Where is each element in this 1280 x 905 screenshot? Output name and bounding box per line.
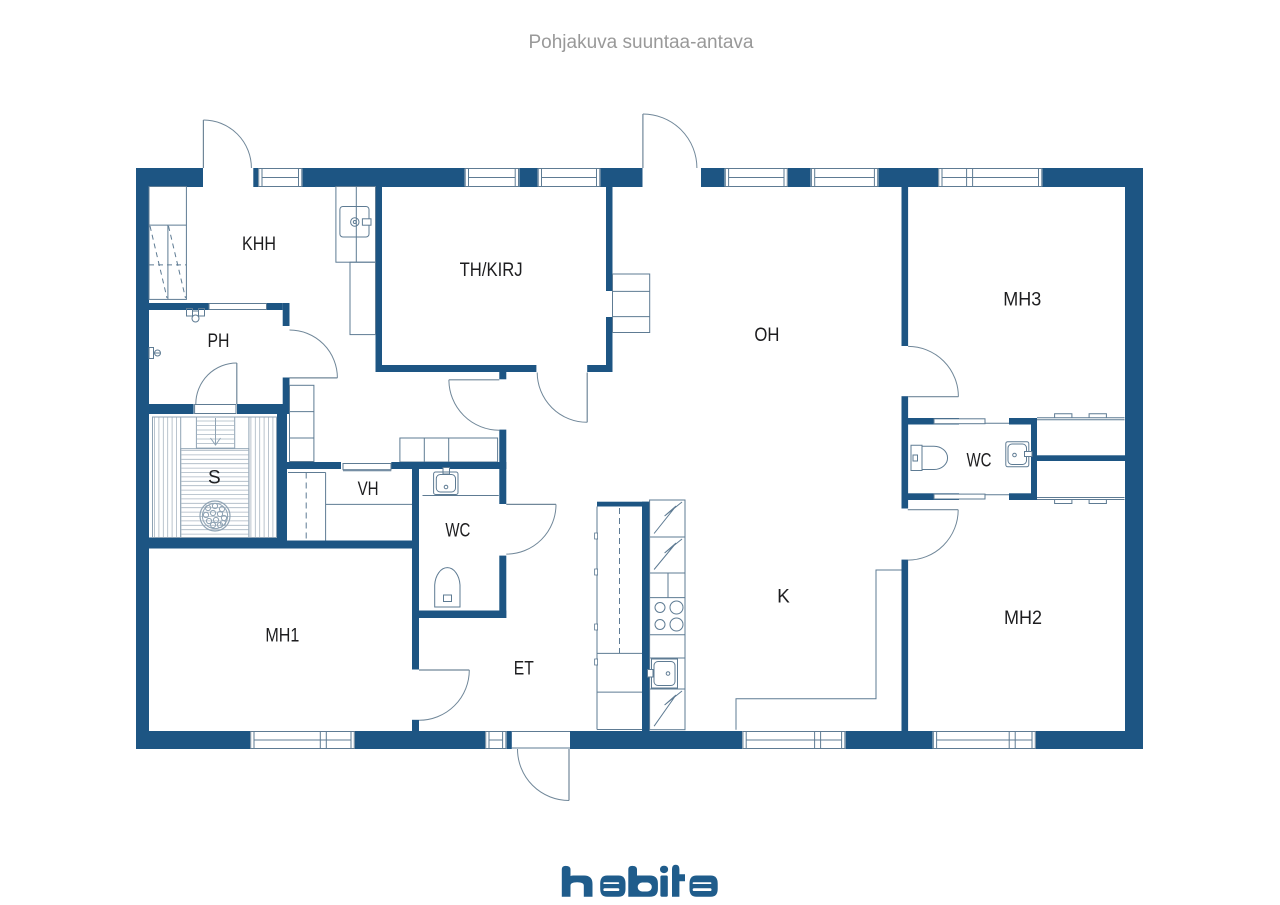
svg-text:KHH: KHH: [242, 234, 276, 255]
svg-text:Pohjakuva suuntaa-antava: Pohjakuva suuntaa-antava: [529, 32, 754, 53]
svg-text:VH: VH: [358, 479, 379, 500]
svg-text:K: K: [777, 587, 790, 608]
svg-text:WC: WC: [445, 521, 470, 542]
svg-text:TH/KIRJ: TH/KIRJ: [460, 260, 523, 281]
svg-text:MH2: MH2: [1004, 608, 1042, 629]
svg-text:PH: PH: [208, 331, 230, 352]
svg-text:S: S: [208, 468, 221, 489]
svg-text:ET: ET: [514, 659, 534, 680]
svg-text:MH3: MH3: [1003, 290, 1041, 311]
svg-text:WC: WC: [967, 451, 992, 472]
svg-text:OH: OH: [754, 325, 779, 346]
svg-text:MH1: MH1: [265, 626, 299, 647]
